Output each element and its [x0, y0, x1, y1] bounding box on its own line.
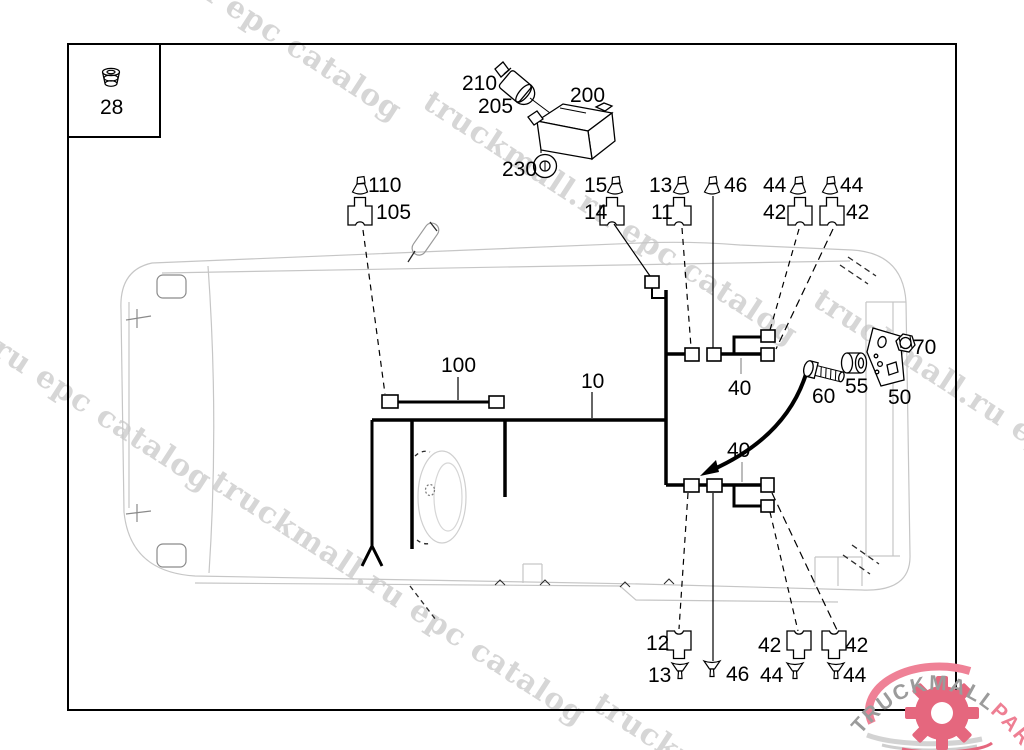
epc-diagram-page: truckmall.ru epc catalog truckmall.ru ep…	[0, 0, 1024, 750]
pin-icon	[705, 177, 720, 195]
part-label-44-top-left: 44	[763, 174, 787, 197]
part-label-13: 13	[649, 174, 672, 197]
pin-icon	[787, 663, 803, 679]
part-label-200: 200	[570, 84, 605, 107]
connector-icon	[348, 198, 372, 226]
part-label-40-top: 40	[728, 377, 751, 400]
connector-square	[761, 348, 774, 361]
connector-icon	[822, 631, 846, 659]
connector-square	[645, 276, 659, 288]
part-label-205: 205	[478, 95, 513, 118]
inset-box	[68, 44, 160, 137]
part-label-15: 15	[584, 174, 607, 197]
connector-icon	[787, 631, 811, 659]
connector-square	[761, 478, 774, 492]
part-label-230: 230	[502, 158, 537, 181]
wiring-harness-diagram: 28	[0, 0, 1024, 750]
part-label-42-bottom-right: 42	[845, 634, 868, 657]
part-label-50: 50	[888, 386, 911, 409]
part-label-70: 70	[913, 336, 936, 359]
part-label-210: 210	[462, 72, 497, 95]
connector-square	[489, 396, 504, 408]
part-label-12: 12	[646, 632, 669, 655]
part-label-44-bottom-right: 44	[843, 664, 867, 687]
part-label-13-bottom: 13	[648, 664, 671, 687]
connector-square	[382, 395, 398, 408]
bushing-icon	[842, 353, 867, 373]
harness-connectors	[382, 276, 775, 512]
pin-icon	[704, 661, 720, 677]
part-label-105: 105	[376, 201, 411, 224]
connector-icon	[788, 198, 812, 226]
part-label-55: 55	[845, 375, 868, 398]
part-label-40-bottom: 40	[727, 439, 750, 462]
pin-icon	[828, 663, 844, 679]
part-label-28: 28	[100, 96, 123, 119]
part-label-14: 14	[584, 201, 608, 224]
pin-icon	[672, 663, 688, 679]
pin-icon	[674, 177, 689, 195]
connector-square	[707, 348, 721, 361]
pointer-arrow	[700, 374, 806, 476]
bolt-icon	[802, 360, 846, 385]
connector-icon	[667, 631, 691, 659]
grommet-icon	[103, 68, 120, 86]
bracket-plate-icon	[867, 328, 904, 386]
connector-icon	[820, 198, 844, 226]
connector-square	[684, 479, 699, 492]
part-label-42-top-left: 42	[763, 201, 786, 224]
part-label-10: 10	[581, 370, 604, 393]
part-label-60: 60	[812, 385, 835, 408]
pin-icon	[791, 177, 806, 195]
gear-hub	[931, 702, 953, 724]
connector-square	[707, 479, 722, 492]
pin-icon	[608, 177, 623, 195]
part-label-46-top: 46	[724, 174, 747, 197]
part-label-42-top-right: 42	[846, 201, 869, 224]
pin-icon	[353, 177, 368, 195]
connector-square	[761, 330, 775, 342]
part-label-100: 100	[441, 354, 476, 377]
part-label-11: 11	[651, 201, 673, 224]
part-label-110: 110	[368, 174, 401, 197]
part-label-42-bottom-left: 42	[758, 634, 781, 657]
part-label-44-top-right: 44	[840, 174, 864, 197]
part-label-46-bottom: 46	[726, 663, 749, 686]
connector-square	[761, 500, 774, 512]
pin-icon	[823, 177, 838, 195]
part-label-44-bottom-left: 44	[760, 664, 784, 687]
connector-square	[685, 348, 699, 361]
